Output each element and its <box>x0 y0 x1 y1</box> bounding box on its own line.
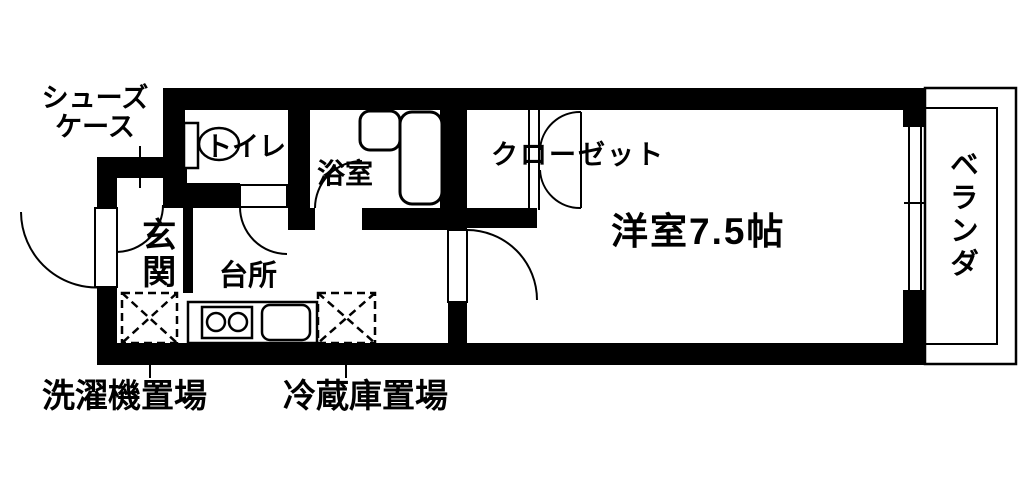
floorplan-canvas: シューズ ケース トイレ 浴室 クローゼット 洋室7.5帖 玄関 台所 ベランダ… <box>0 0 1024 486</box>
fridge-space-cross-2 <box>318 293 375 343</box>
stove-burner-left <box>207 313 225 331</box>
washer-space-cross-2 <box>122 293 177 343</box>
toilet-door-arc <box>240 207 287 254</box>
bath-vanity-fixture <box>360 111 400 150</box>
stove-burner-right <box>229 313 247 331</box>
sink-fixture <box>262 305 310 340</box>
wall-bath-closet <box>440 108 467 210</box>
wall-left-upper <box>97 157 117 208</box>
toilet-label: トイレ <box>205 133 286 162</box>
wall-kitchen-room-lower <box>448 302 467 343</box>
room-door-leaf <box>448 230 467 302</box>
bathtub-fixture <box>400 112 442 204</box>
shoe-case-label-line2: ケース <box>22 113 168 142</box>
veranda-label: ベランダ <box>945 149 976 281</box>
bathroom-label: 浴室 <box>317 159 373 189</box>
wall-right-upper <box>903 110 925 127</box>
western-room-label: 洋室7.5帖 <box>611 212 785 252</box>
washer-space-label: 洗濯機置場 <box>42 378 207 414</box>
wall-closet-bottom <box>440 208 537 228</box>
closet-door-arc-bottom <box>540 170 581 208</box>
shoe-case-label-line1: シューズ <box>22 84 168 113</box>
fridge-space-cross-1 <box>318 293 375 343</box>
fridge-space-box <box>318 293 375 343</box>
wall-toilet-bottom <box>163 183 240 208</box>
wall-bottom <box>97 343 925 365</box>
wall-entrance-stub <box>183 205 193 293</box>
closet-label: クローゼット <box>491 141 665 170</box>
kitchen-label: 台所 <box>219 261 277 292</box>
fridge-space-label: 冷蔵庫置場 <box>283 378 448 414</box>
wall-right-lower <box>903 290 925 343</box>
shoe-case-label: シューズ ケース <box>22 84 168 142</box>
room-door-arc <box>467 230 537 300</box>
toilet-door-leaf <box>240 185 287 207</box>
bath-door-opening <box>315 208 362 230</box>
entrance-door-leaf <box>95 208 117 287</box>
entrance-label: 玄関 <box>137 217 174 291</box>
washer-space-cross-1 <box>122 293 177 343</box>
washer-space-box <box>122 293 177 343</box>
wall-top <box>163 88 925 110</box>
toilet-tank-fixture <box>184 123 198 168</box>
entrance-door-arc <box>21 212 106 288</box>
